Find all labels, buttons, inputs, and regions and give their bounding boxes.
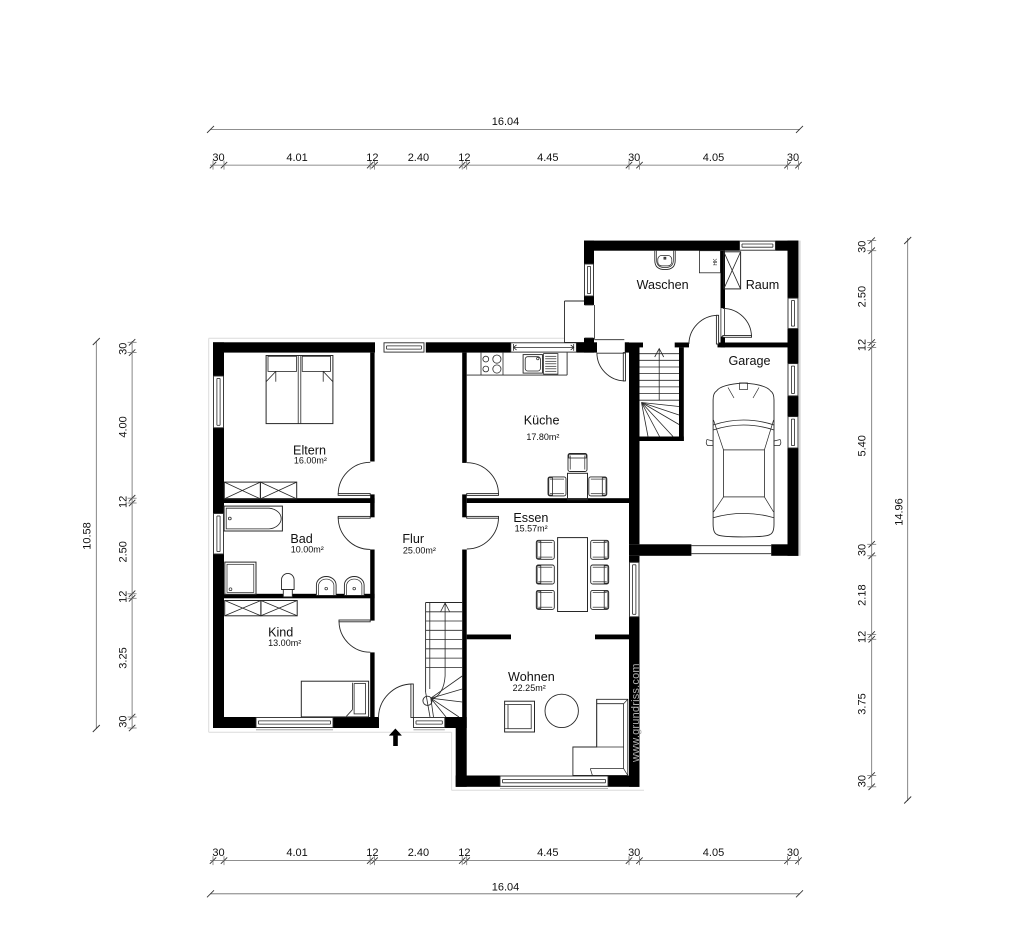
svg-text:15.57m²: 15.57m²: [515, 523, 548, 533]
svg-text:30: 30: [628, 152, 640, 164]
svg-text:30: 30: [212, 152, 224, 164]
svg-text:22.25m²: 22.25m²: [513, 683, 546, 693]
svg-text:17.80m²: 17.80m²: [526, 432, 559, 442]
svg-text:12: 12: [117, 496, 129, 508]
svg-text:3.25: 3.25: [117, 647, 129, 668]
svg-text:4.05: 4.05: [703, 847, 724, 859]
svg-text:14.96: 14.96: [893, 498, 905, 526]
svg-text:3.75: 3.75: [856, 693, 868, 714]
svg-text:4.01: 4.01: [286, 152, 307, 164]
svg-text:12: 12: [366, 847, 378, 859]
svg-text:www.grundriss.com: www.grundriss.com: [630, 663, 642, 763]
svg-text:30: 30: [787, 847, 799, 859]
svg-text:16.00m²: 16.00m²: [294, 455, 327, 465]
svg-text:5.40: 5.40: [856, 435, 868, 456]
svg-text:30: 30: [856, 775, 868, 787]
svg-text:16.04: 16.04: [492, 882, 520, 894]
svg-text:30: 30: [856, 544, 868, 556]
svg-text:Garage: Garage: [728, 354, 770, 368]
svg-text:2.50: 2.50: [856, 286, 868, 307]
svg-text:4.45: 4.45: [537, 152, 558, 164]
svg-text:12: 12: [117, 591, 129, 603]
svg-text:4.45: 4.45: [537, 847, 558, 859]
svg-text:2.18: 2.18: [856, 584, 868, 605]
svg-text:10.00m²: 10.00m²: [291, 544, 324, 554]
svg-text:30: 30: [856, 241, 868, 253]
svg-text:HK: HK: [713, 258, 719, 266]
svg-text:Flur: Flur: [402, 532, 424, 546]
svg-text:12: 12: [856, 631, 868, 643]
svg-text:4.05: 4.05: [703, 152, 724, 164]
svg-text:12: 12: [458, 152, 470, 164]
svg-text:12: 12: [856, 339, 868, 351]
svg-text:2.50: 2.50: [117, 541, 129, 562]
svg-text:Küche: Küche: [524, 414, 560, 428]
svg-text:4.00: 4.00: [117, 416, 129, 437]
svg-text:25.00m²: 25.00m²: [403, 546, 436, 556]
svg-text:12: 12: [458, 847, 470, 859]
svg-text:Raum: Raum: [746, 278, 780, 292]
svg-text:12: 12: [366, 152, 378, 164]
svg-text:16.04: 16.04: [492, 116, 520, 128]
svg-text:Waschen: Waschen: [637, 278, 689, 292]
svg-text:30: 30: [628, 847, 640, 859]
svg-text:4.01: 4.01: [286, 847, 307, 859]
svg-text:30: 30: [212, 847, 224, 859]
svg-text:2.40: 2.40: [408, 152, 429, 164]
svg-text:2.40: 2.40: [408, 847, 429, 859]
svg-text:30: 30: [787, 152, 799, 164]
svg-text:30: 30: [117, 715, 129, 727]
svg-text:10.58: 10.58: [81, 522, 93, 550]
svg-text:30: 30: [117, 343, 129, 355]
svg-text:13.00m²: 13.00m²: [268, 638, 301, 648]
